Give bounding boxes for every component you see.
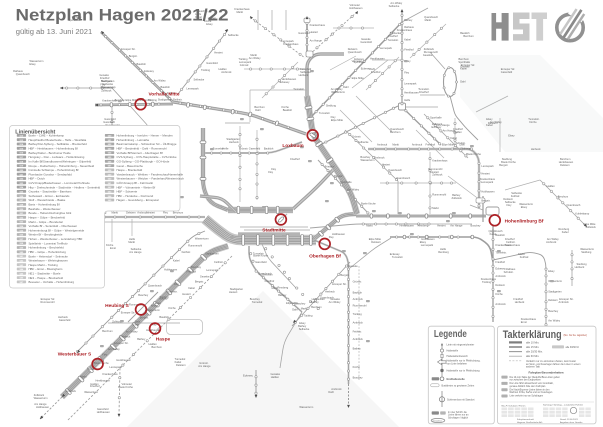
svg-text:Stadtgarten: Stadtgarten [158,98,172,102]
svg-text:alle 30/60 M.: alle 30/60 M. [566,346,580,349]
svg-text:Enneper Str.: Enneper Str. [114,341,129,345]
svg-text:genaue Abfahrt bitte dem Fahrp: genaue Abfahrt bitte dem Fahrplan [510,385,547,388]
svg-text:Tunnelstr.: Tunnelstr. [392,255,404,259]
svg-text:Herbeck: Herbeck [515,300,525,304]
svg-text:Halden: Halden [271,375,280,379]
svg-text:Elsey: Elsey [29,62,36,66]
svg-text:Boele Kirche: Boele Kirche [118,385,133,389]
svg-text:Selbecke: Selbecke [389,4,400,8]
svg-text:Ambrock: Ambrock [559,300,570,304]
svg-text:Hestert: Hestert [310,30,319,34]
svg-text:Kabel: Kabel [173,259,180,263]
svg-text:Am Widey: Am Widey [154,79,167,83]
svg-text:Tücking: Tücking [482,280,492,284]
svg-text:Eilpe Mitte: Eilpe Mitte [352,76,365,80]
svg-text:Kabel: Kabel [490,232,497,236]
svg-text:Rummenohl: Rummenohl [41,300,55,304]
svg-text:alle 20/30 Min.: alle 20/30 Min. [526,350,543,354]
svg-text:Selbecke: Selbecke [358,140,369,144]
svg-text:Rummenohl: Rummenohl [432,192,446,196]
svg-text:Kabel: Kabel [486,123,493,127]
svg-text:Lennepark: Lennepark [481,164,494,168]
svg-text:Fley: Fley [404,70,410,74]
svg-text:Herbeck: Herbeck [229,140,239,144]
svg-text:Vorhalle Mitte: Vorhalle Mitte [148,92,179,98]
svg-text:Lennepark: Lennepark [481,180,494,184]
svg-text:Stand: 13.06.2021: Stand: 13.06.2021 [560,418,579,421]
svg-text:Eckesey: Eckesey [243,374,254,378]
svg-text:Enneper Str.: Enneper Str. [121,311,136,315]
svg-text:Elsey: Elsey [548,269,555,273]
svg-text:Oberhagen Bf: Oberhagen Bf [309,254,341,260]
svg-text:Baukloh: Baukloh [264,147,274,151]
svg-text:Henkhausen: Henkhausen [116,358,131,362]
svg-text:Stadtgarten: Stadtgarten [205,251,219,255]
svg-text:Wolf – Westerbreide – Baake: Wolf – Westerbreide – Baake [29,198,66,202]
svg-text:Friedhof: Friedhof [265,279,275,283]
svg-text:Berchum: Berchum [262,272,272,276]
svg-text:Henkhausen: Henkhausen [404,91,419,95]
svg-text:Delstern: Delstern [176,363,186,367]
svg-text:Bergstr.: Bergstr. [195,279,204,283]
svg-text:alle 60 Min.: alle 60 Min. [526,354,540,358]
svg-text:Enneper Str.: Enneper Str. [121,47,136,51]
svg-text:Berchum: Berchum [152,345,162,349]
svg-text:Lennepark: Lennepark [421,243,434,247]
svg-text:Tücking: Tücking [303,314,313,318]
svg-text:Ambrock: Ambrock [546,240,557,244]
svg-text:Samstag / Sonntag – zusätzlich: Samstag / Sonntag – zusätzliche Fahrten [543,404,584,407]
svg-text:Volmetal: Volmetal [461,146,471,150]
svg-text:Buschey: Buschey [295,302,306,306]
svg-text:Eilpe Mitte: Eilpe Mitte [442,143,455,147]
svg-text:Lennepark: Lennepark [109,365,122,369]
svg-text:Zollstock: Zollstock [452,196,463,200]
svg-text:Feithstr.: Feithstr. [182,250,192,254]
svg-text:Bergstr.: Bergstr. [481,199,490,203]
svg-text:Hestert: Hestert [229,290,238,294]
svg-text:Am Hange: Am Hange [450,224,463,228]
svg-text:Garenfeld: Garenfeld [59,318,71,322]
svg-text:Netzplan Hagen 2021/22: Netzplan Hagen 2021/22 [16,7,229,25]
svg-text:Rummenohl: Rummenohl [353,304,367,308]
svg-text:Kabel: Kabel [450,136,457,140]
svg-text:Holthausen: Holthausen [36,405,50,409]
svg-text:Quambusch: Quambusch [388,168,403,172]
svg-text:Bathey: Bathey [311,300,320,304]
svg-text:Baukloh: Baukloh [161,85,171,89]
svg-text:Heubing S: Heubing S [105,303,130,309]
svg-text:Berchum: Berchum [390,130,400,134]
svg-text:Holthausen: Holthausen [349,6,363,10]
svg-text:Buschey: Buschey [471,224,482,228]
svg-text:Markt: Markt [128,240,135,244]
svg-text:von Linie befahren: von Linie befahren [447,363,468,366]
svg-text:Boele Kirche: Boele Kirche [361,201,376,205]
svg-text:Grünstr.: Grünstr. [353,280,363,284]
svg-text:Stadtmitte: Stadtmitte [262,228,286,234]
svg-text:Emst: Emst [110,246,116,250]
svg-text:Krankenhaus: Krankenhaus [432,158,448,162]
svg-text:Ambrock: Ambrock [412,143,423,147]
svg-text:Wasserturm: Wasserturm [299,405,313,409]
svg-text:Sporthalle: Sporthalle [340,180,352,184]
svg-text:Busfahrten zu gewissen Zeiten: Busfahrten zu gewissen Zeiten [442,384,475,387]
svg-text:Ambrock: Ambrock [66,389,77,393]
svg-text:Ambrock: Ambrock [377,143,388,147]
svg-text:Garenfeld: Garenfeld [255,260,267,264]
svg-text:Grünstr.: Grünstr. [240,63,250,67]
svg-text:Remberg: Remberg [438,250,449,254]
svg-text:alle 15 Min.: alle 15 Min. [526,345,540,349]
svg-text:Delstern: Delstern [371,240,381,244]
svg-text:Am Widey: Am Widey [126,330,139,334]
svg-text:Garenfeld: Garenfeld [249,147,261,151]
svg-text:Siedlung: Siedlung [581,250,592,254]
svg-text:Feithstr.: Feithstr. [353,329,363,333]
svg-text:Geweke: Geweke [200,274,210,278]
svg-text:Am Hange: Am Hange [310,38,323,42]
svg-text:Kabel: Kabel [460,66,467,70]
svg-text:Dahl: Dahl [292,307,298,311]
svg-text:Delstern: Delstern [495,283,505,287]
svg-text:Nächten Fr/Sa, Sa/So und vor F: Nächten Fr/Sa, Sa/So und vor Feiertagen [510,391,554,394]
svg-text:Kirche: Kirche [495,292,503,296]
svg-text:Wasserturm: Wasserturm [146,308,160,312]
svg-text:Krankenhaus: Krankenhaus [310,23,326,27]
svg-text:Buschey: Buschey [138,293,149,297]
svg-text:Spielbrink – Loxentrat Treffho: Spielbrink – Loxentrat Treffholz [29,241,69,245]
svg-text:Berchum: Berchum [463,34,473,38]
svg-text:Dahl: Dahl [460,79,466,83]
svg-text:Selbecke: Selbecke [228,33,239,37]
svg-text:Kirche: Kirche [151,303,159,307]
svg-text:Tunnelstr.: Tunnelstr. [293,87,305,91]
svg-text:Wasserturm: Wasserturm [34,396,48,400]
svg-text:Elsey: Elsey [521,205,528,209]
svg-text:Selbecke: Selbecke [194,78,205,82]
svg-text:Dahl: Dahl [343,85,349,89]
svg-text:Stadtgarten: Stadtgarten [548,289,562,293]
svg-text:Takterklärung: Takterklärung [503,329,562,341]
svg-text:Herbeck: Herbeck [121,335,131,339]
svg-text:Markt: Markt [237,10,244,14]
svg-text:Zollstock: Zollstock [586,225,597,229]
svg-text:Fley: Fley [268,170,274,174]
svg-text:Fahrplan-Besonderheiten: Fahrplan-Besonderheiten [528,370,563,374]
svg-text:Schulstr.: Schulstr. [456,141,466,145]
svg-text:Westerbauer S: Westerbauer S [58,352,92,358]
svg-text:Wasserturm: Wasserturm [195,237,209,241]
svg-text:Quambusch: Quambusch [566,203,581,207]
svg-text:Berchum: Berchum [311,305,321,309]
svg-text:Fahrplanauskunft: Fahrplanauskunft [517,418,534,421]
svg-text:Baukloh: Baukloh [283,108,293,112]
svg-text:In roter Schrift: die: In roter Schrift: die [448,411,467,414]
svg-text:Garenfeld: Garenfeld [501,70,513,74]
svg-text:Hestert: Hestert [481,172,490,176]
svg-text:Rummenohl: Rummenohl [188,243,202,247]
svg-text:Tücking: Tücking [201,68,211,72]
svg-text:Fley: Fley [174,282,180,286]
svg-text:Linie verkehrt nur an Schultag: Linie verkehrt nur an Schultagen [510,395,544,398]
svg-text:Am Widey: Am Widey [347,187,360,191]
svg-text:Grünstr.: Grünstr. [239,147,249,151]
svg-text:Bergstr.: Bergstr. [140,316,149,320]
svg-text:Schienenbus mit Standort: Schienenbus mit Standort [447,398,475,401]
svg-text:Wasserturm: Wasserturm [84,390,98,394]
svg-text:Henkhausen: Henkhausen [370,56,385,60]
svg-text:Herbeck: Herbeck [299,73,309,77]
svg-text:Legende: Legende [434,328,467,340]
svg-text:Linien fahren nur an: Linien fahren nur an [448,414,469,417]
svg-text:Markt: Markt [432,206,439,210]
svg-text:Eilpe Mitte: Eilpe Mitte [331,118,344,122]
svg-text:Holthausen: Holthausen [332,232,346,236]
svg-text:Hestert: Hestert [437,224,446,228]
svg-text:Hagener Straßenbahn AG: Hagener Straßenbahn AG [517,421,543,424]
svg-text:Kuhlerkamp: Kuhlerkamp [575,211,589,215]
svg-text:Friedhof: Friedhof [290,157,300,161]
svg-text:Kirche: Kirche [353,365,361,369]
svg-text:Ambrock: Ambrock [495,302,506,306]
svg-text:Helfe: Helfe [404,98,411,102]
svg-text:Die Linie fährt abweichend vom: Die Linie fährt abweichend vom Grundtakt… [510,382,554,385]
svg-text:Feithstr.: Feithstr. [511,194,521,198]
svg-text:Die NachtExpress-Linien fahren: Die NachtExpress-Linien fahren in den [510,388,551,391]
svg-text:Lennepark: Lennepark [206,268,219,272]
svg-text:Kabel: Kabel [188,286,195,290]
svg-text:Hohenlimburg Bf: Hohenlimburg Bf [505,218,544,224]
svg-text:Friedhof: Friedhof [325,165,335,169]
svg-text:Haltestellenbereich: Haltestellenbereich [447,355,469,358]
svg-text:Dahl: Dahl [328,390,334,394]
svg-text:Tunnelstr.: Tunnelstr. [166,290,178,294]
svg-text:Bergstr.: Bergstr. [129,54,138,58]
svg-text:Markt: Markt [425,18,432,22]
svg-text:Haltestelle nur in Pfeilrichtu: Haltestelle nur in Pfeilrichtung [447,370,481,373]
svg-text:Lennepark: Lennepark [380,46,393,50]
svg-text:gültig ab 13. Juni 2021: gültig ab 13. Juni 2021 [16,27,92,36]
svg-text:Tücking: Tücking [353,312,363,316]
svg-text:(Mo. bis Sa. tagsüber): (Mo. bis Sa. tagsüber) [564,334,588,337]
svg-text:Lennepark: Lennepark [186,87,199,91]
svg-text:Bathey: Bathey [353,347,362,351]
svg-text:alle 10 Min.: alle 10 Min. [526,340,540,344]
svg-text:Eckesey: Eckesey [280,80,291,84]
svg-text:Buschey: Buschey [191,265,202,269]
svg-text:Feithstr.: Feithstr. [520,255,530,259]
svg-text:Bathey/Kabel – Berchumer Heide: Bathey/Kabel – Berchumer Heide [29,151,72,155]
svg-text:Fley: Fley [329,235,335,239]
svg-text:Garenfeld: Garenfeld [206,61,218,65]
svg-text:Fley: Fley [102,353,108,357]
svg-text:Tücking: Tücking [159,295,169,299]
svg-text:Tunnelstr.: Tunnelstr. [252,300,264,304]
svg-text:Endhaltestelle: Endhaltestelle [447,377,466,381]
svg-text:Hestert: Hestert [214,51,223,55]
svg-text:Am Widey: Am Widey [108,347,121,351]
svg-text:Friedhof: Friedhof [404,48,414,52]
svg-text:Boeseler – Vorhalle – Hohenlim: Boeseler – Vorhalle – Hohenlimburg [29,280,75,284]
svg-text:Ambrock: Ambrock [495,274,506,278]
svg-text:Eckesey: Eckesey [495,266,506,270]
svg-text:Remberg: Remberg [418,224,429,228]
svg-text:Wasserturm: Wasserturm [361,158,375,162]
svg-text:Baukloh: Baukloh [137,62,147,66]
svg-text:Geweke: Geweke [348,264,358,268]
svg-text:Quambusch: Quambusch [16,72,31,76]
svg-text:Ambrock: Ambrock [221,70,232,74]
svg-text:Eckesey: Eckesey [144,69,155,73]
svg-text:Bathey: Bathey [404,18,413,22]
svg-text:Halden: Halden [547,184,556,188]
svg-text:Herbeck: Herbeck [325,290,335,294]
svg-text:Kirche: Kirche [529,120,537,124]
svg-text:Holthausen: Holthausen [481,190,495,194]
svg-text:Markt: Markt [80,375,87,379]
svg-text:Friedhof: Friedhof [495,260,505,264]
svg-text:anderen Takt: anderen Takt [526,366,540,369]
svg-text:Ambrock: Ambrock [374,155,385,159]
svg-text:Ambrock: Ambrock [353,321,364,325]
svg-text:Boele Kirche: Boele Kirche [253,254,268,258]
svg-text:Herbeck: Herbeck [575,265,585,269]
svg-text:Baukloh: Baukloh [495,233,505,237]
svg-text:Tunnelstr.: Tunnelstr. [387,38,399,42]
svg-text:Friedhof: Friedhof [419,90,429,94]
svg-text:Henkhausen: Henkhausen [400,224,415,228]
svg-text:Krankenhaus: Krankenhaus [102,372,118,376]
svg-text:Berchum: Berchum [102,329,112,333]
svg-text:nur zwischen den Endpunkten: nur zwischen den Endpunkten [510,379,542,382]
svg-text:Markt: Markt [392,143,399,147]
svg-text:Berchum: Berchum [558,195,568,199]
svg-text:Haspe: Haspe [156,337,171,343]
svg-text:Feithstr.: Feithstr. [214,260,224,264]
svg-text:Krankenhaus: Krankenhaus [505,243,521,247]
svg-text:Tücking: Tücking [148,98,158,102]
svg-text:Buschey: Buschey [353,376,364,380]
svg-text:Helfe: Helfe [222,147,229,151]
svg-text:Friedhof: Friedhof [187,270,197,274]
svg-text:Schulstr.: Schulstr. [504,270,514,274]
svg-text:Eckesey: Eckesey [432,125,443,129]
svg-text:ennepebus: ennepebus [433,420,442,422]
svg-text:Garenfeld: Garenfeld [360,40,372,44]
svg-text:Wasserturm: Wasserturm [331,90,345,94]
svg-text:Siedlung: Siedlung [326,104,337,108]
svg-text:Die 10-min-Takte der Niederflu: Die 10-min-Takte der NiederflurBus-Linie… [510,376,561,379]
svg-text:Dahl: Dahl [255,108,261,112]
svg-text:Herbeck: Herbeck [531,147,541,151]
svg-text:Krankenhaus: Krankenhaus [283,42,299,46]
svg-text:Quambusch: Quambusch [396,176,411,180]
svg-text:Delstern: Delstern [548,298,558,302]
svg-text:Baukloh: Baukloh [159,315,169,319]
svg-text:Haltestelle: Haltestelle [447,350,459,353]
svg-text:Enneper Str.: Enneper Str. [332,282,347,286]
svg-text:Halden: Halden [90,382,99,386]
svg-text:Am Hange: Am Hange [129,250,142,254]
svg-text:Elsey: Elsey [508,133,515,137]
svg-text:Friedhof: Friedhof [388,34,398,38]
svg-text:Hestert: Hestert [382,162,391,166]
svg-text:Am Hange: Am Hange [198,364,211,368]
svg-text:Baukloh: Baukloh [353,290,363,294]
svg-text:Am Widey: Am Widey [329,300,342,304]
svg-text:Buschey: Buschey [548,309,559,313]
svg-text:Schultagen / täglich: Schultagen / täglich [448,416,469,419]
svg-text:Markt: Markt [366,224,373,228]
svg-text:Kirche: Kirche [168,306,176,310]
svg-text:Garenfeld: Garenfeld [298,31,310,35]
svg-text:Grünstr.: Grünstr. [352,134,362,138]
svg-text:Kabel: Kabel [562,230,569,234]
svg-text:Feithstr.: Feithstr. [173,97,183,101]
svg-text:Hagen – Gevelsberg – Ennepetal: Hagen – Gevelsberg – Ennepetal [117,198,159,202]
svg-text:Am Widey: Am Widey [548,319,561,323]
svg-text:Sporthalle: Sporthalle [353,60,365,64]
svg-text:Quambusch: Quambusch [148,284,163,288]
svg-text:Holthausen: Holthausen [97,410,111,414]
svg-text:Dahl: Dahl [135,320,141,324]
svg-text:Vorhalle Bf/Stennert – Altenha: Vorhalle Bf/Stennert – Altenhagen Bf [117,151,163,155]
svg-text:Zollstock: Zollstock [101,88,112,92]
svg-text:Loxbaum: Loxbaum [282,143,303,149]
svg-text:Markt: Markt [301,306,308,310]
svg-text:Bathey: Bathey [278,293,287,297]
svg-text:Kabel: Kabel [404,37,411,41]
svg-text:Friedhof: Friedhof [371,70,381,74]
svg-text:Tunnelstr.: Tunnelstr. [319,111,331,115]
svg-text:Bergstr.: Bergstr. [499,163,508,167]
svg-text:Linie mit eingezeichneter: Linie mit eingezeichneter [447,343,475,346]
svg-text:Remberg: Remberg [278,286,289,290]
svg-text:Bathey: Bathey [137,337,146,341]
svg-text:Halden: Halden [454,130,463,134]
svg-text:Quambusch: Quambusch [348,50,363,54]
svg-text:Bergstr.: Bergstr. [334,174,343,178]
svg-text:Boele Kirche: Boele Kirche [466,152,481,156]
svg-text:Sporthalle: Sporthalle [430,116,442,120]
svg-text:Hestert: Hestert [182,292,191,296]
svg-text:Bergstr.: Bergstr. [340,273,349,277]
svg-text:Mo–Fr Schulzeit / Ferien: Mo–Fr Schulzeit / Ferien [502,404,527,407]
svg-text:Selbecke: Selbecke [299,327,310,331]
svg-text:Fley: Fley [507,203,513,207]
svg-text:Geweke: Geweke [423,53,433,57]
svg-text:Lennepark: Lennepark [404,81,417,85]
svg-text:Delstern: Delstern [560,163,570,167]
svg-text:Emst: Emst [521,320,527,324]
svg-text:Hestert: Hestert [431,170,440,174]
svg-text:Ambrock: Ambrock [353,297,364,301]
svg-text:Friedhof: Friedhof [426,143,436,147]
svg-text:Am Widey: Am Widey [249,56,262,60]
svg-text:Angaben ohne Gewähr: Angaben ohne Gewähr [560,421,583,424]
svg-text:Ambrock: Ambrock [353,337,364,341]
